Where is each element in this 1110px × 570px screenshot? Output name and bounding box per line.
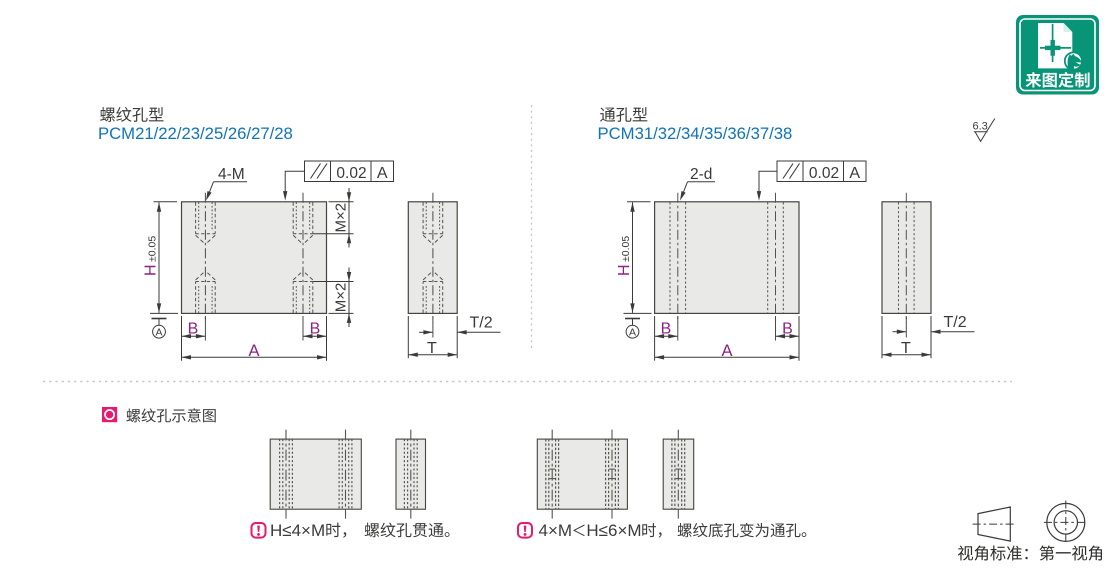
svg-text:T: T: [901, 340, 911, 357]
svg-text:4-M: 4-M: [218, 166, 245, 183]
svg-text:A: A: [155, 327, 162, 339]
svg-text:PCM21/22/23/25/26/27/28: PCM21/22/23/25/26/27/28: [98, 124, 293, 143]
svg-text:M×2: M×2: [333, 283, 350, 313]
svg-text:A: A: [629, 327, 636, 339]
svg-text:A: A: [377, 165, 388, 182]
svg-text:0.02: 0.02: [809, 165, 839, 182]
svg-text:T/2: T/2: [470, 315, 493, 332]
svg-text:H: H: [616, 264, 633, 276]
svg-text:PCM31/32/34/35/36/37/38: PCM31/32/34/35/36/37/38: [598, 124, 793, 143]
svg-text:±0.05: ±0.05: [147, 236, 159, 262]
svg-text:0.02: 0.02: [336, 165, 366, 182]
svg-text:6.3: 6.3: [973, 121, 988, 133]
svg-text:M×2: M×2: [333, 203, 350, 233]
svg-text:T/2: T/2: [944, 314, 967, 331]
svg-text:H≤4×M: H≤4×M: [270, 521, 325, 540]
svg-text:T: T: [427, 340, 437, 357]
svg-text:B: B: [310, 321, 321, 338]
svg-text:B: B: [188, 321, 199, 338]
svg-text:B: B: [782, 321, 793, 338]
svg-text:A: A: [721, 342, 732, 360]
svg-text:2-d: 2-d: [690, 166, 712, 183]
svg-text:H: H: [143, 264, 160, 276]
svg-text:4×M: 4×M: [539, 521, 573, 540]
svg-text:±0.05: ±0.05: [620, 236, 632, 262]
svg-text:B: B: [661, 321, 672, 338]
svg-text:A: A: [849, 165, 860, 182]
svg-text:H≤6×M: H≤6×M: [586, 521, 641, 540]
svg-text:A: A: [248, 342, 259, 360]
